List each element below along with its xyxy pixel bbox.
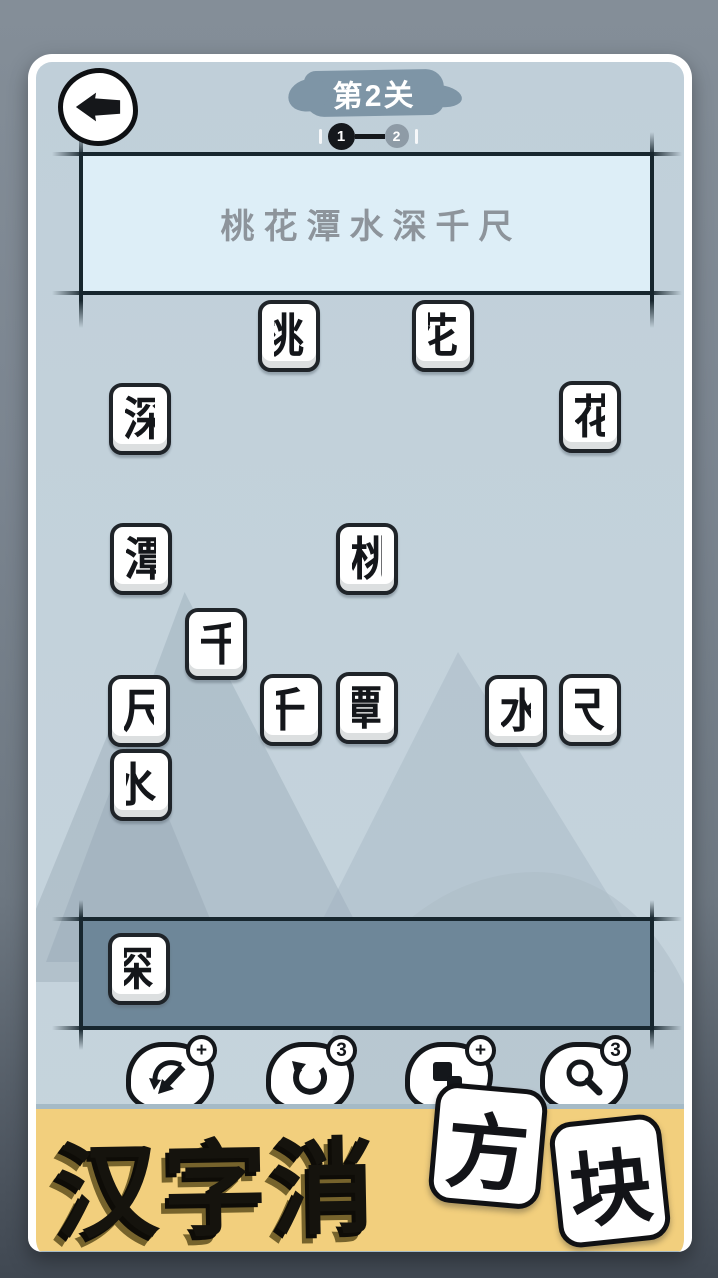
character-fragment: 水 [126,758,156,812]
character-fragment: 桃 [274,309,304,363]
phone-screen: 第2关 1 2 桃花潭水深千尺 桃花深花潭桃千尺千潭水尺水深 [28,54,692,1252]
character-fragment: 潭 [352,681,382,735]
character-fragment: 尺 [124,684,154,738]
progress-step-next: 2 [385,124,409,148]
clue-box-right-line [650,132,654,328]
magnifier-icon [562,1057,606,1099]
progress-step-current: 1 [328,123,355,150]
board-tile[interactable]: 水 [485,675,547,747]
undo-badge: 3 [326,1035,357,1066]
character-fragment: 潭 [126,532,156,586]
level-label: 第2关 [332,70,415,115]
character-fragment: 千 [276,683,306,737]
board-tile[interactable]: 深 [109,383,171,455]
clue-box-bottom-line [52,291,682,295]
character-fragment: 尺 [575,683,605,737]
progress-tick [319,129,322,144]
game-screenshot: 第2关 1 2 桃花潭水深千尺 桃花深花潭桃千尺千潭水尺水深 [0,0,718,1278]
board-tile[interactable]: 潭 [110,523,172,595]
undo-arrow-icon [288,1057,332,1099]
tray-right-line [650,900,654,1050]
brand-tile-fang: 方 [427,1081,549,1210]
board-tile[interactable]: 尺 [559,674,621,746]
poem-clue-text: 桃花潭水深千尺 [83,156,650,291]
tray-tile[interactable]: 深 [108,933,170,1005]
magnifier-badge: 3 [600,1035,631,1066]
character-fragment: 花 [575,390,605,444]
board-tile[interactable]: 潭 [336,672,398,744]
tray-bottom-line [52,1026,682,1030]
board-tile[interactable]: 尺 [108,675,170,747]
level-progress: 1 2 [36,118,692,154]
board-tile[interactable]: 桃 [258,300,320,372]
shuffle-badge: + [186,1035,217,1066]
character-fragment: 千 [201,617,231,671]
character-fragment: 花 [428,309,458,363]
brand-tile-kuai: 块 [548,1112,673,1249]
board-tile[interactable]: 水 [110,749,172,821]
tray-top-line [52,917,682,921]
progress-tick [415,129,418,144]
progress-bar [355,134,385,139]
board-tile[interactable]: 花 [412,300,474,372]
level-banner: 第2关 [304,69,445,117]
character-fragment: 桃 [352,532,382,586]
board-tile[interactable]: 千 [185,608,247,680]
board-tile[interactable]: 花 [559,381,621,453]
board-tile[interactable]: 千 [260,674,322,746]
character-fragment: 深 [124,942,154,996]
board-tile[interactable]: 桃 [336,523,398,595]
character-fragment: 深 [125,392,155,446]
add-block-badge: + [465,1035,496,1066]
app-title-text: 汉字消 [54,1102,381,1252]
tray-left-line [79,900,83,1050]
character-fragment: 水 [501,684,531,738]
shuffle-arrows-icon [147,1057,193,1099]
